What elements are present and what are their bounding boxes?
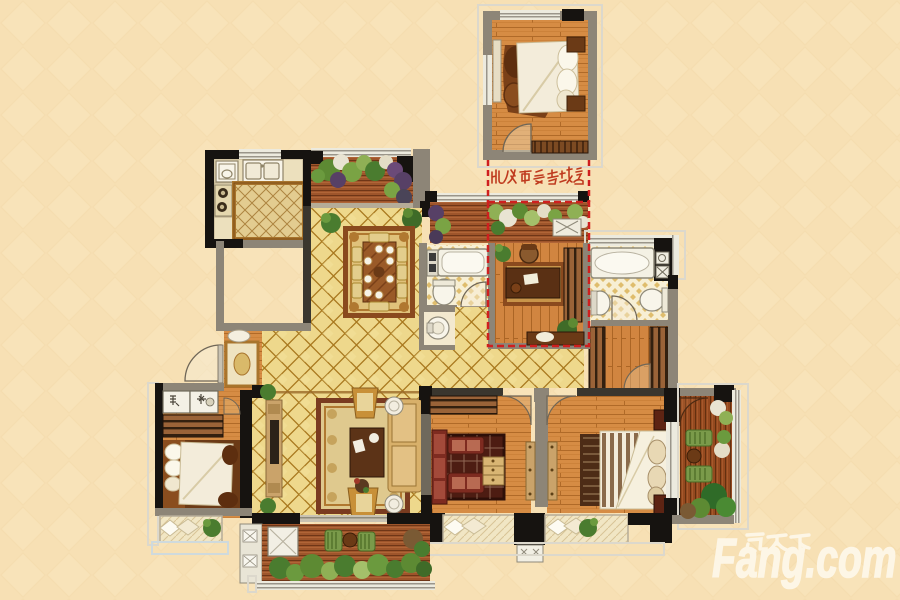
svg-text:Fang.com: Fang.com <box>712 529 896 590</box>
